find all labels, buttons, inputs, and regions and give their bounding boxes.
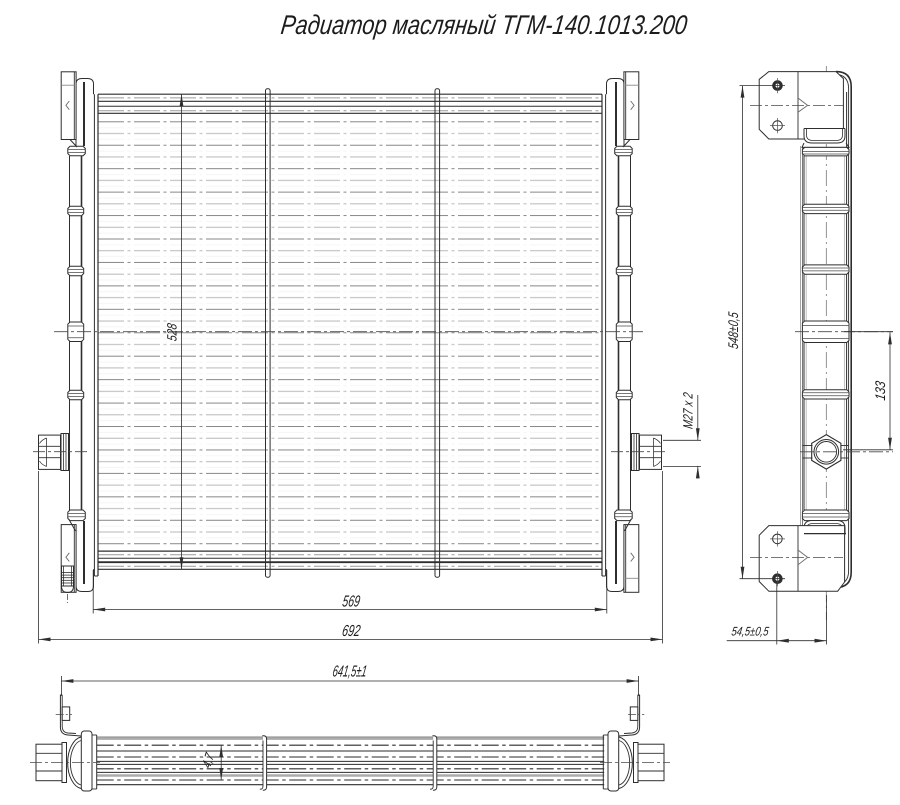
svg-text:641,5±1: 641,5±1 bbox=[331, 663, 368, 681]
svg-text:Радиатор масляный ТГМ-140.1013: Радиатор масляный ТГМ-140.1013.200 bbox=[279, 9, 689, 40]
svg-text:528: 528 bbox=[165, 322, 180, 342]
svg-text:133: 133 bbox=[872, 380, 888, 402]
svg-text:569: 569 bbox=[341, 592, 361, 610]
svg-text:548±0,5: 548±0,5 bbox=[725, 311, 741, 350]
svg-text:692: 692 bbox=[341, 622, 362, 640]
svg-text:54,5±0,5: 54,5±0,5 bbox=[731, 625, 771, 639]
svg-text:M27 x 2: M27 x 2 bbox=[681, 391, 696, 430]
